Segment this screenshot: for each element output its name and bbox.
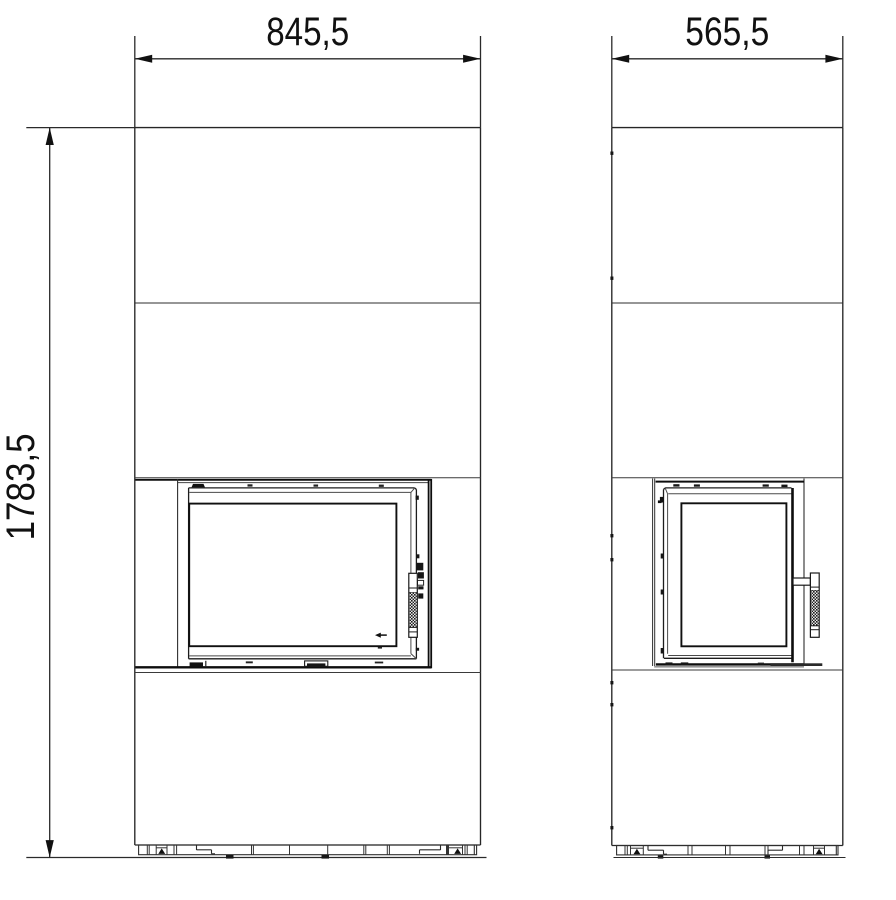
svg-text:845,5: 845,5: [266, 10, 349, 54]
svg-text:1783,5: 1783,5: [0, 433, 43, 540]
svg-text:565,5: 565,5: [685, 10, 769, 54]
